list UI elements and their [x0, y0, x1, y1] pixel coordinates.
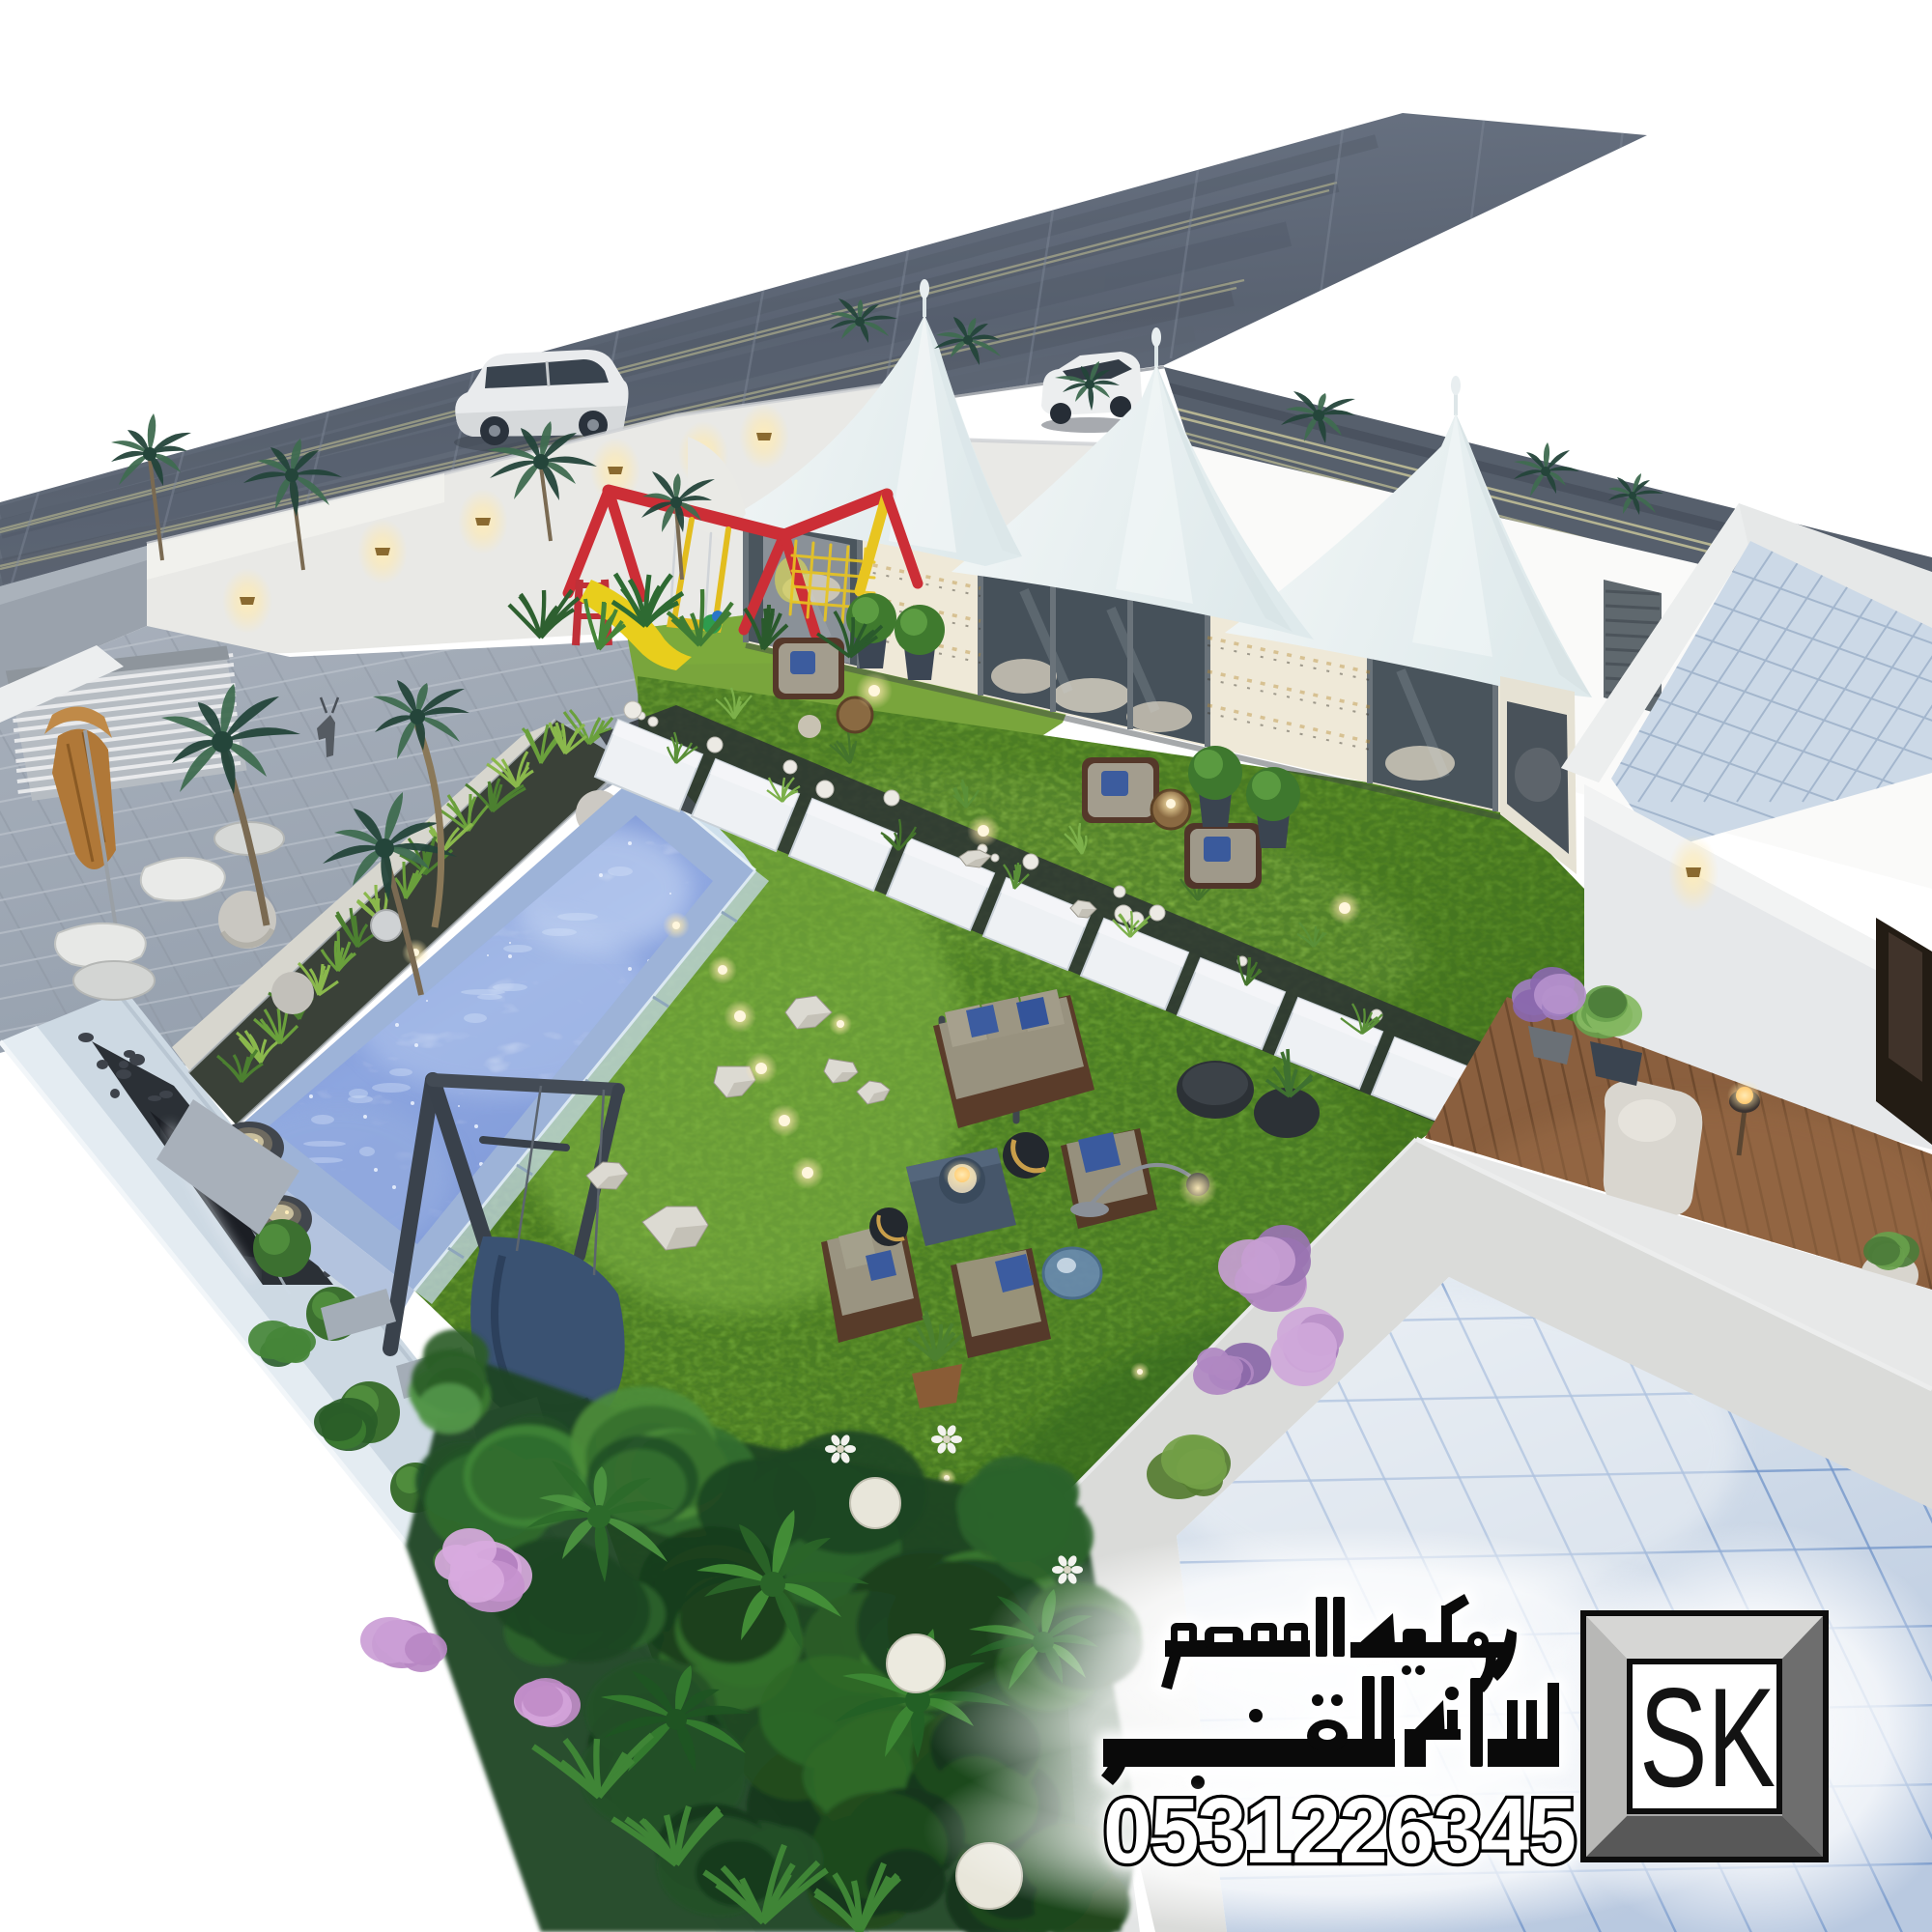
svg-text:SK: SK [1639, 1659, 1776, 1816]
svg-text:0531226345: 0531226345 [1103, 1779, 1575, 1883]
